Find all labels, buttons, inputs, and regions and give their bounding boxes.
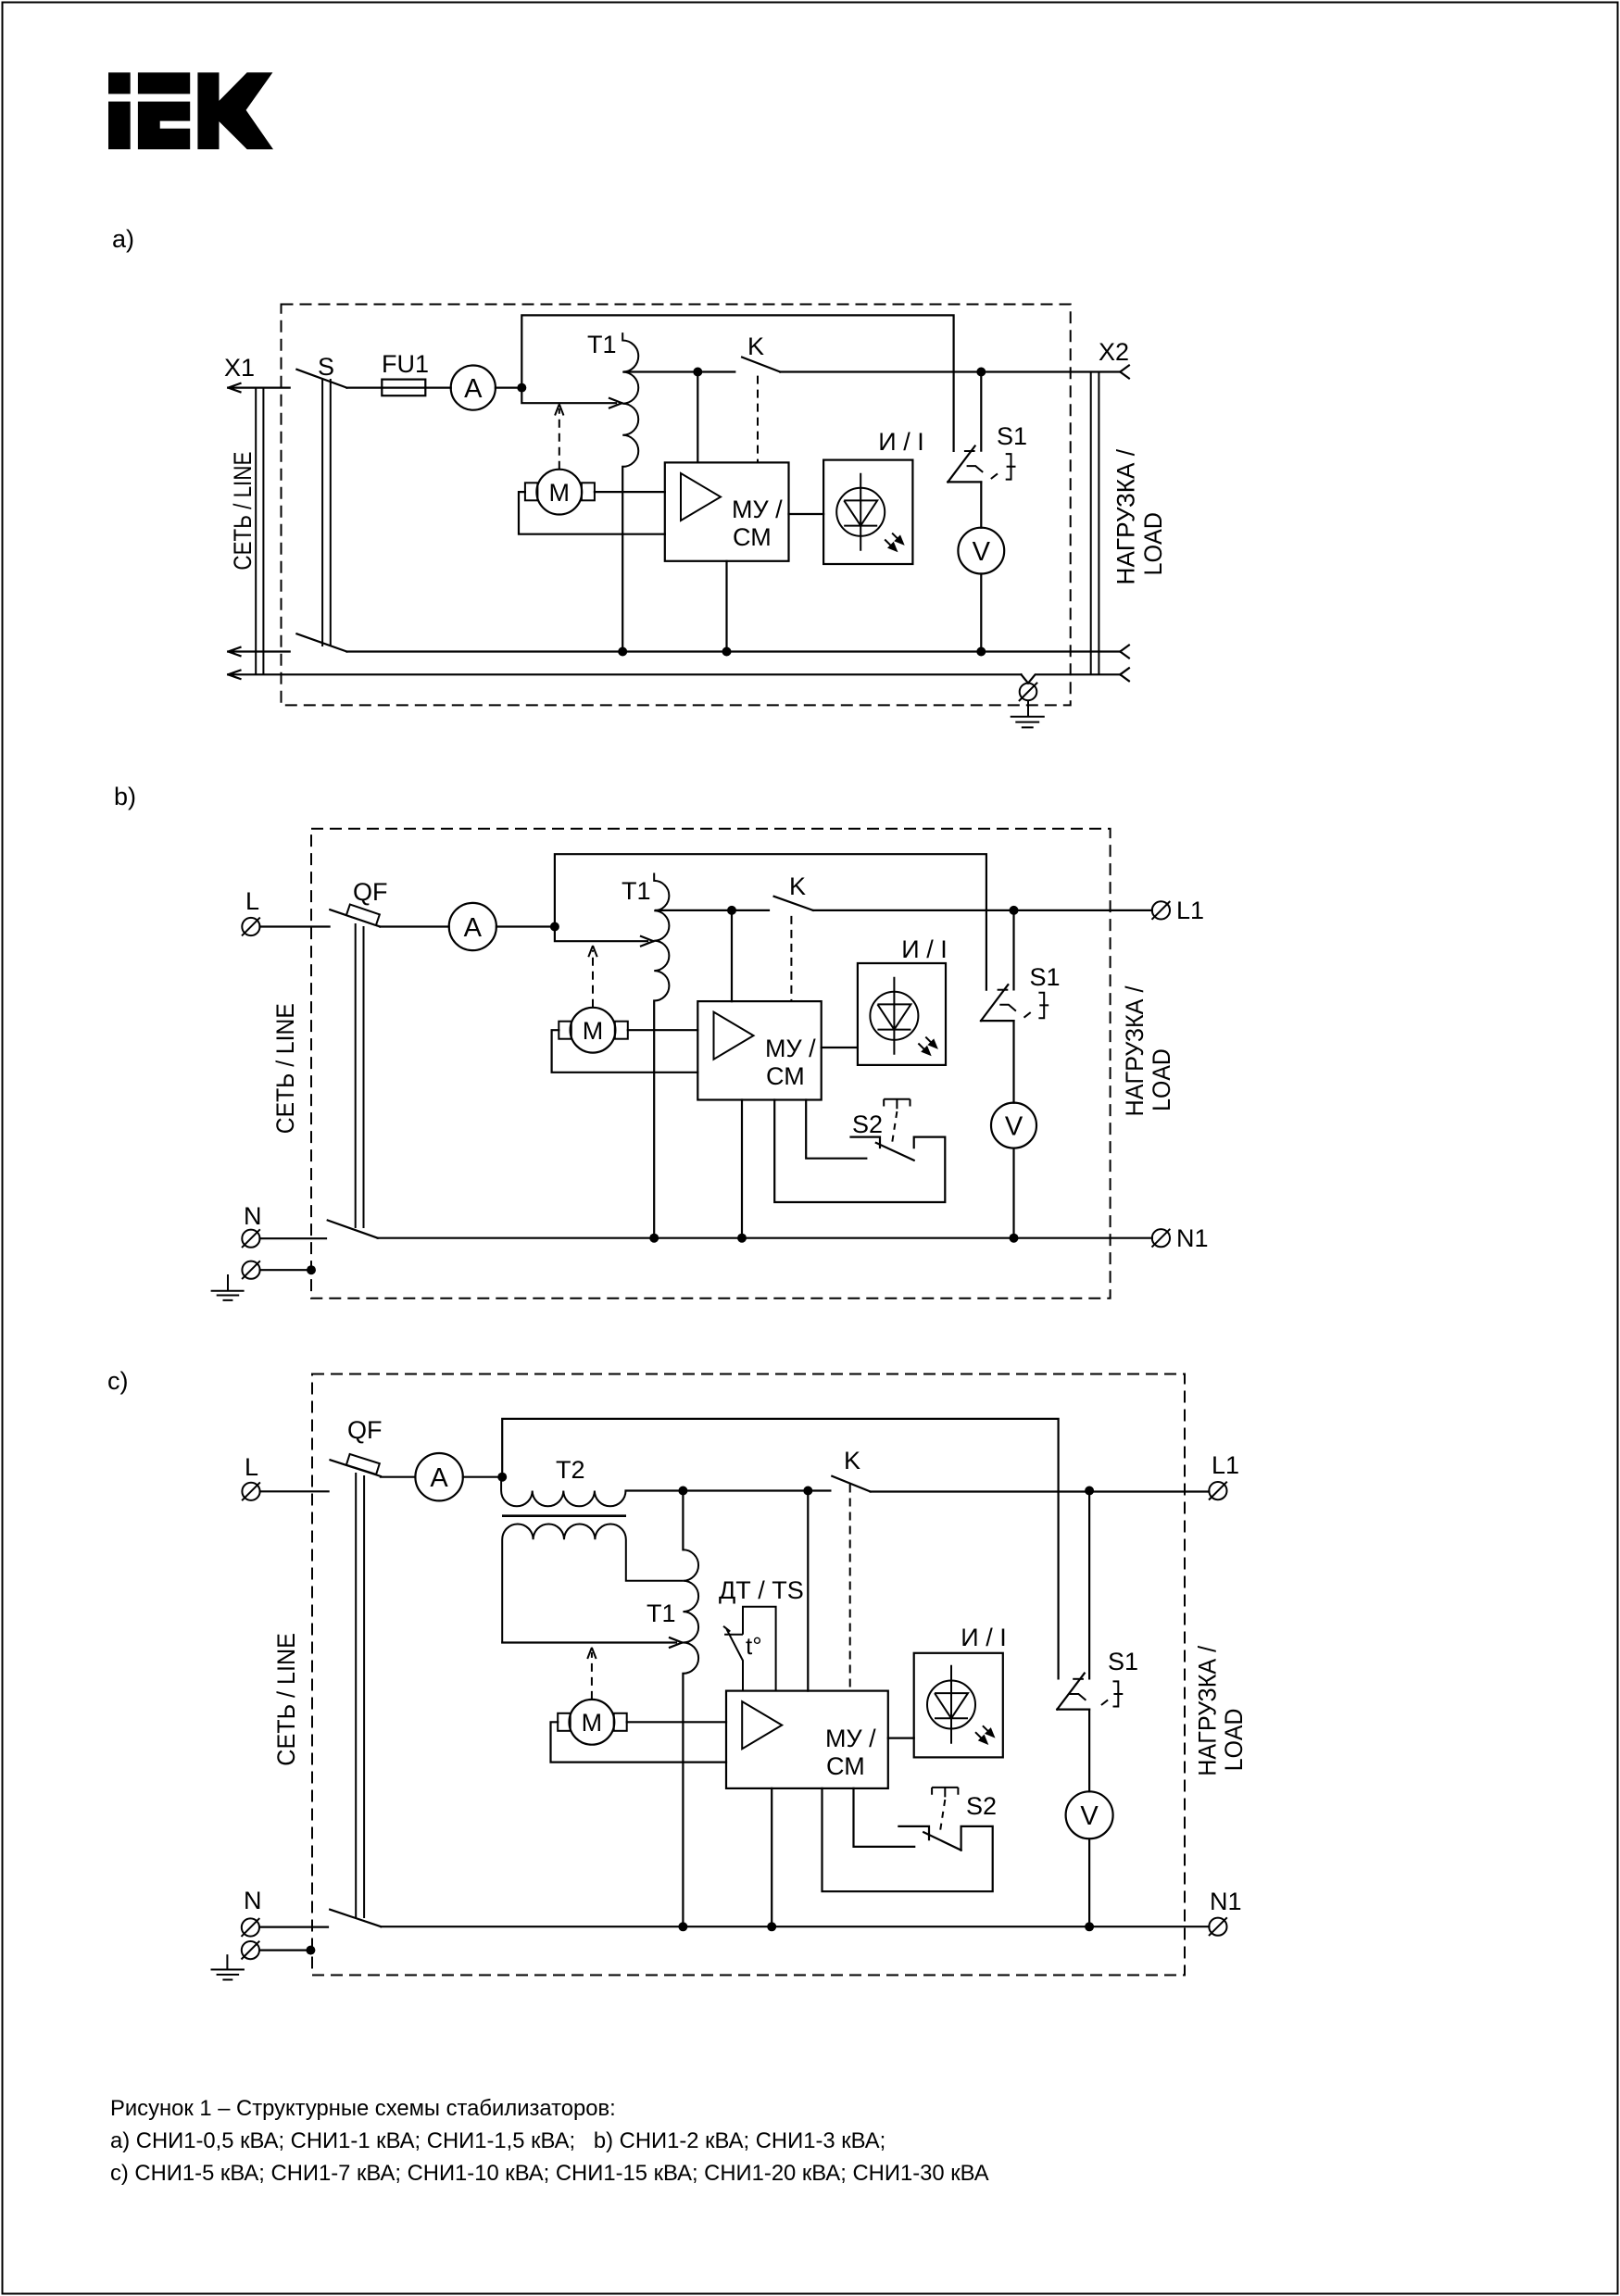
svg-text:X2: X2 — [1099, 338, 1129, 366]
svg-text:c): c) — [107, 1367, 129, 1395]
svg-text:МУ /: МУ / — [732, 496, 783, 523]
svg-text:K: K — [789, 872, 806, 900]
svg-text:НАГРУЗКА /: НАГРУЗКА / — [1193, 1645, 1221, 1775]
svg-text:K: K — [747, 332, 764, 360]
svg-text:LOAD: LOAD — [1220, 1709, 1248, 1772]
svg-text:A: A — [430, 1463, 448, 1493]
svg-text:Рисунок 1 – Структурные схемы: Рисунок 1 – Структурные схемы стабилизат… — [110, 2096, 616, 2121]
svg-text:ДТ / TS: ДТ / TS — [719, 1576, 804, 1604]
svg-text:L1: L1 — [1176, 897, 1204, 924]
svg-text:S1: S1 — [997, 422, 1027, 450]
svg-text:L: L — [245, 887, 259, 915]
svg-text:L: L — [245, 1453, 258, 1481]
svg-text:И / I: И / I — [878, 428, 923, 456]
svg-text:c) СНИ1-5 кВА; СНИ1-7 кВА; СНИ: c) СНИ1-5 кВА; СНИ1-7 кВА; СНИ1-10 кВА; … — [110, 2161, 989, 2186]
svg-text:L1: L1 — [1212, 1451, 1239, 1479]
svg-text:НАГРУЗКА /: НАГРУЗКА / — [1112, 448, 1140, 584]
svg-text:T1: T1 — [622, 877, 651, 905]
svg-text:QF: QF — [347, 1416, 383, 1444]
svg-text:СМ: СМ — [733, 523, 772, 551]
svg-text:QF: QF — [353, 878, 388, 906]
svg-text:T1: T1 — [647, 1600, 676, 1627]
svg-text:И / I: И / I — [901, 935, 947, 963]
svg-text:FU1: FU1 — [382, 350, 429, 378]
svg-text:МУ /: МУ / — [765, 1035, 816, 1062]
svg-text:a) СНИ1-0,5 кВА; СНИ1-1 кВА; С: a) СНИ1-0,5 кВА; СНИ1-1 кВА; СНИ1-1,5 кВ… — [110, 2128, 885, 2153]
svg-text:S: S — [318, 353, 334, 381]
svg-text:a): a) — [112, 225, 134, 253]
svg-text:S1: S1 — [1030, 963, 1061, 991]
svg-text:T2: T2 — [556, 1456, 585, 1484]
svg-text:t°: t° — [746, 1632, 762, 1660]
svg-text:М: М — [583, 1017, 604, 1045]
svg-text:LOAD: LOAD — [1148, 1048, 1175, 1111]
svg-text:S1: S1 — [1108, 1648, 1138, 1675]
svg-text:НАГРУЗКА /: НАГРУЗКА / — [1121, 985, 1149, 1116]
svg-text:МУ /: МУ / — [825, 1725, 876, 1752]
svg-text:b): b) — [114, 783, 136, 810]
svg-text:СЕТЬ / LINE: СЕТЬ / LINE — [229, 452, 257, 571]
svg-text:A: A — [464, 913, 483, 943]
svg-text:S2: S2 — [852, 1110, 883, 1138]
svg-text:V: V — [1080, 1801, 1099, 1831]
svg-text:LOAD: LOAD — [1139, 512, 1167, 576]
svg-text:М: М — [582, 1709, 603, 1737]
svg-text:K: K — [844, 1447, 860, 1474]
svg-text:N1: N1 — [1176, 1224, 1209, 1252]
svg-text:N1: N1 — [1210, 1888, 1242, 1915]
svg-text:A: A — [464, 374, 483, 404]
svg-text:СЕТЬ / LINE: СЕТЬ / LINE — [272, 1633, 300, 1766]
svg-text:СМ: СМ — [826, 1752, 865, 1780]
svg-text:И / I: И / I — [961, 1624, 1006, 1651]
svg-text:S2: S2 — [966, 1792, 997, 1820]
svg-text:М: М — [549, 479, 571, 507]
svg-text:N: N — [244, 1202, 262, 1230]
svg-text:V: V — [1005, 1112, 1023, 1142]
svg-text:СЕТЬ / LINE: СЕТЬ / LINE — [271, 1003, 299, 1134]
svg-text:N: N — [244, 1887, 262, 1914]
svg-text:СМ: СМ — [766, 1062, 805, 1090]
svg-text:T1: T1 — [587, 331, 617, 358]
svg-text:V: V — [973, 537, 991, 567]
svg-text:X1: X1 — [224, 354, 255, 382]
